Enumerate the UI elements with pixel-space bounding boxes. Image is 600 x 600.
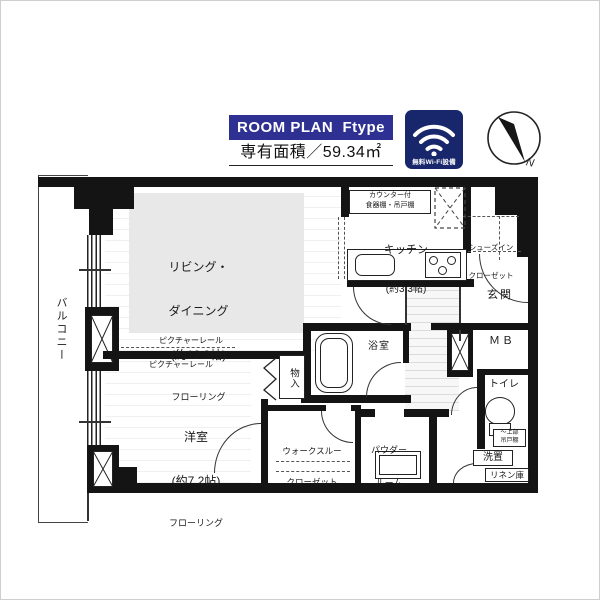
wall-wtc-north-a	[268, 405, 326, 411]
powder-line1: パウダー	[363, 445, 415, 456]
bath-label: 浴室	[357, 341, 401, 353]
compass: N	[482, 107, 548, 173]
picture-rail-label-1: ピクチャーレール	[147, 336, 235, 346]
bath-door-arc	[366, 362, 401, 397]
wall-block-ne	[495, 187, 529, 215]
exclusive-area-label: 専有面積／59.34㎡	[229, 142, 393, 166]
wall-powder-north-a	[359, 409, 375, 417]
balcony-label: バルコニー	[51, 289, 67, 369]
floor-plan-page: ROOM PLAN Ftype 専有面積／59.34㎡ 無料Wi-Fi設備 N …	[0, 0, 600, 600]
wall-mb-north	[431, 323, 529, 330]
wall-corner-block-nw	[74, 177, 134, 209]
wall-step-nw	[89, 209, 113, 235]
upper-cabinet-note: 〜上部 吊戸棚	[493, 429, 526, 447]
wtc-line2: クローゼット	[269, 477, 355, 487]
bedroom-floor: フローリング	[141, 518, 251, 529]
bedroom-name: 洋室	[141, 430, 251, 445]
window-tick-1	[79, 269, 111, 271]
compass-icon	[482, 107, 548, 173]
living-window	[87, 235, 103, 307]
living-label-line2: ダイニング	[141, 304, 256, 319]
bedroom-size: (約7.2帖)	[141, 474, 251, 489]
bedroom-window	[87, 371, 103, 445]
kitchen-size: (約3.3帖)	[367, 284, 445, 296]
kitchen-divider-dash-2	[344, 217, 345, 279]
sic-line2: クローゼット	[465, 271, 517, 280]
wall-bath-east	[403, 323, 409, 363]
wtc-label: ウォークスルー クローゼット	[269, 425, 355, 508]
wall-powder-east	[429, 417, 437, 483]
bathtub-inner	[320, 338, 348, 388]
wall-bedroom-east	[261, 399, 268, 483]
powder-label: パウダー ルーム	[363, 423, 415, 511]
counter-cabinet-line1: カウンター付	[350, 191, 430, 201]
stove-burner-icon	[447, 256, 456, 265]
counter-cabinet-line2: 食器棚・吊戸棚	[350, 201, 430, 211]
powder-line2: ルーム	[363, 478, 415, 489]
sic-line1: シューズイン	[465, 243, 517, 252]
wall-powder-north-b	[404, 409, 449, 417]
wifi-badge-label: 無料Wi-Fi設備	[405, 156, 463, 166]
entrance-step-line	[459, 287, 461, 341]
balcony-right-edge	[87, 493, 89, 521]
mb-label: ＭＢ	[479, 335, 525, 348]
wifi-icon	[405, 110, 463, 156]
bedroom-label: 洋室 (約7.2帖) フローリング	[141, 401, 251, 558]
living-label-line1: リビング・	[141, 260, 256, 275]
picture-rail-label-2: ピクチャーレール	[135, 360, 227, 370]
wall-kitchen-stub	[341, 187, 349, 217]
sic-label: シューズイン クローゼット	[465, 225, 517, 298]
kitchen-name: キッチン	[367, 244, 445, 257]
laundry-label: 洗置	[473, 450, 513, 466]
upper-cabinet-line1: 〜上部	[494, 430, 525, 438]
toilet-label: トイレ	[483, 379, 525, 391]
toilet-bowl	[485, 397, 515, 425]
plan-type-badge: ROOM PLAN Ftype	[229, 115, 393, 140]
linen-door-arc	[453, 463, 477, 483]
wall-bath-north	[303, 323, 411, 331]
bifold-door-icon	[262, 357, 278, 401]
sic-dash-top	[463, 216, 519, 217]
counter-cabinet-label: カウンター付 食器棚・吊戸棚	[349, 190, 431, 214]
wall-step-sw	[119, 467, 137, 493]
upper-cabinet-line2: 吊戸棚	[494, 438, 525, 446]
wtc-line1: ウォークスルー	[269, 446, 355, 456]
window-tick-2	[79, 421, 111, 423]
kitchen-label: キッチン (約3.3帖)	[367, 217, 445, 323]
pillar-x-icon	[93, 451, 113, 487]
storage-label: 物入	[285, 361, 299, 395]
kitchen-divider-dash-1	[338, 217, 339, 279]
entrance-label: 玄関	[477, 289, 523, 302]
wifi-badge: 無料Wi-Fi設備	[405, 110, 463, 169]
linen-label: リネン庫	[485, 468, 529, 482]
